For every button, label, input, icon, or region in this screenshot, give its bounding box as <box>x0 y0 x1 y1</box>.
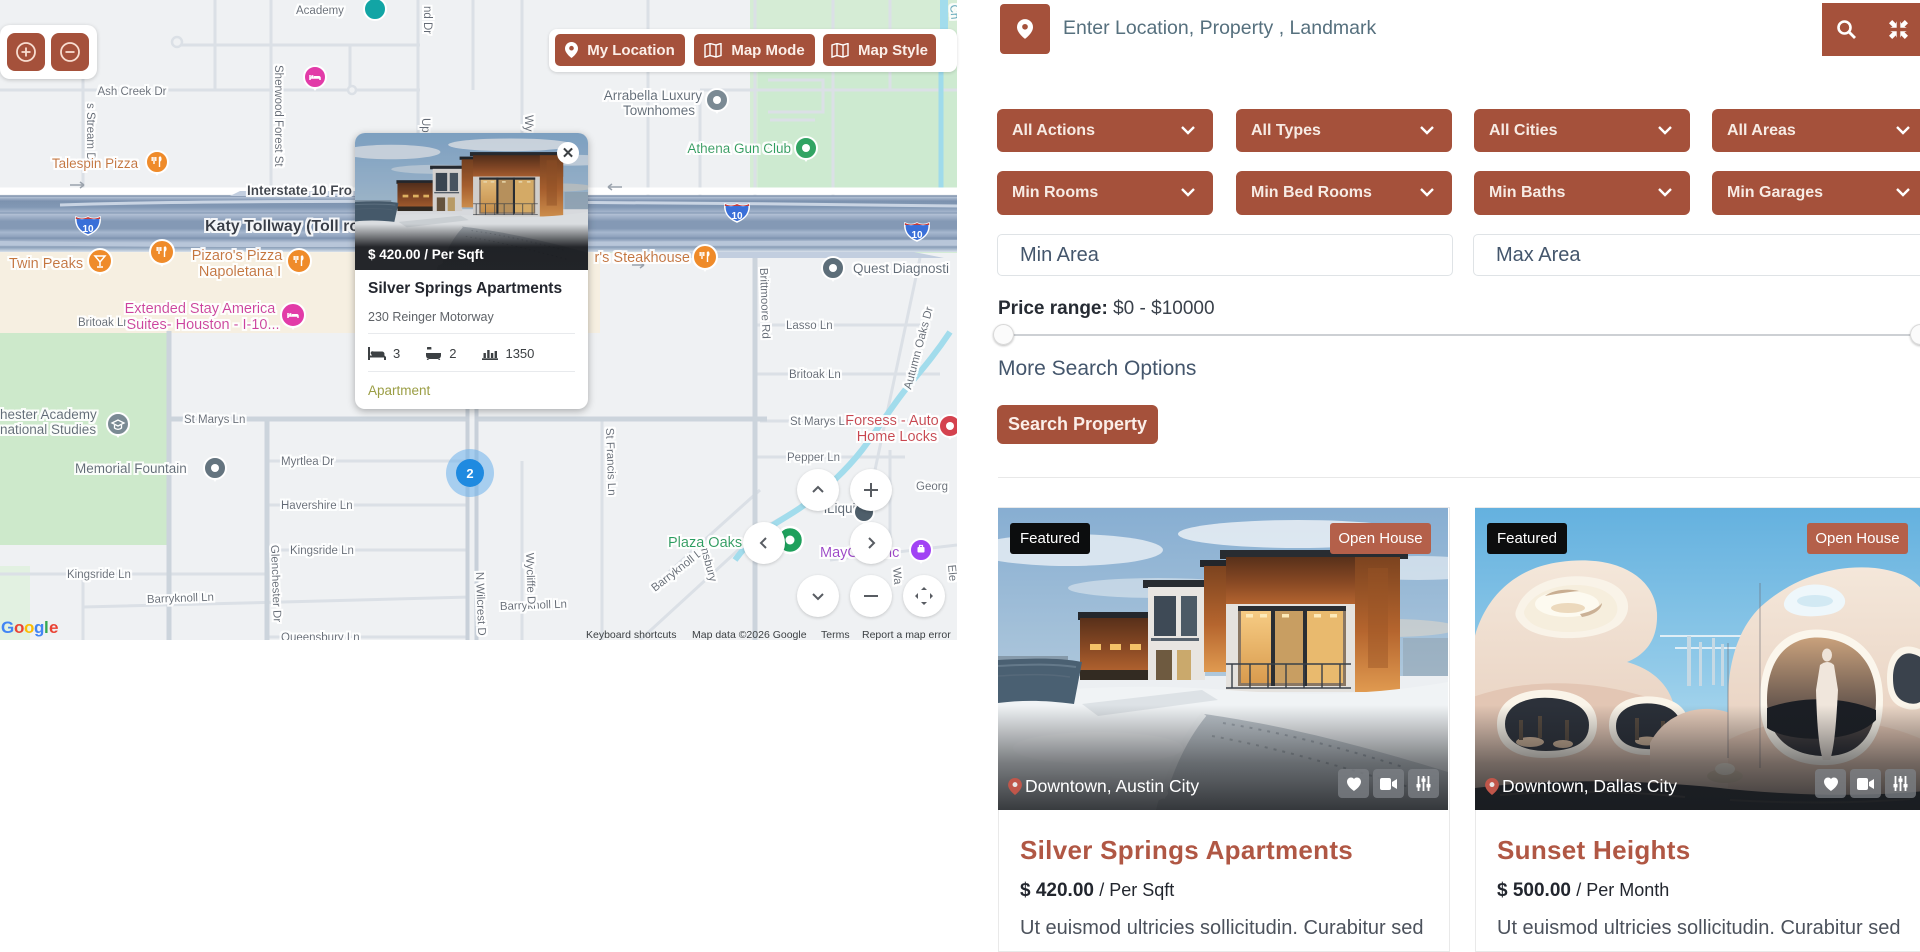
svg-text:Katy Tollway (Toll roa: Katy Tollway (Toll roa <box>205 218 368 235</box>
svg-text:10: 10 <box>731 211 743 222</box>
svg-text:St Marys Ln: St Marys Ln <box>790 416 851 428</box>
svg-text:Athena Gun Club: Athena Gun Club <box>687 141 791 156</box>
svg-text:Keyboard shortcuts: Keyboard shortcuts <box>586 629 676 640</box>
svg-text:Terms: Terms <box>821 629 850 640</box>
svg-text:national Studies: national Studies <box>0 422 96 437</box>
svg-text:N Wilcrest D: N Wilcrest D <box>473 572 487 636</box>
svg-text:Extended Stay America: Extended Stay America <box>125 301 277 317</box>
svg-text:Academy: Academy <box>296 5 344 17</box>
svg-text:Glenchester Dr: Glenchester Dr <box>268 545 283 623</box>
svg-text:Georg: Georg <box>916 481 948 493</box>
svg-text:Home Locks: Home Locks <box>857 429 938 445</box>
svg-text:Plaza Oaks: Plaza Oaks <box>668 535 742 551</box>
svg-text:Britoak Ln: Britoak Ln <box>789 369 841 381</box>
svg-text:nsbury: nsbury <box>698 547 719 584</box>
svg-text:Map data ©2026 Google: Map data ©2026 Google <box>692 629 807 640</box>
svg-text:Sherwood Forest St: Sherwood Forest St <box>272 65 284 167</box>
svg-text:Suites- Houston - I-10...: Suites- Houston - I-10... <box>126 317 279 333</box>
svg-text:nd Dr: nd Dr <box>421 6 433 34</box>
svg-text:Napoletana I: Napoletana I <box>199 264 281 280</box>
svg-text:Up: Up <box>419 118 431 133</box>
svg-text:r's Steakhouse: r's Steakhouse <box>595 250 690 266</box>
svg-text:e: e <box>49 618 58 637</box>
svg-text:Ch: Ch <box>947 4 957 20</box>
svg-text:Quest Diagnosti: Quest Diagnosti <box>853 261 949 276</box>
svg-text:Townhomes: Townhomes <box>623 103 695 118</box>
svg-text:Lasso Ln: Lasso Ln <box>786 320 833 332</box>
svg-text:Ele: Ele <box>945 564 957 582</box>
svg-text:Brittmoore Rd: Brittmoore Rd <box>757 268 771 339</box>
svg-text:Queensbury Ln: Queensbury Ln <box>281 632 360 640</box>
svg-text:o: o <box>24 618 34 637</box>
svg-text:Twin Peaks: Twin Peaks <box>9 256 83 272</box>
svg-text:o: o <box>14 618 24 637</box>
svg-text:Havershire Ln: Havershire Ln <box>281 500 353 512</box>
svg-text:Wa: Wa <box>890 567 903 585</box>
svg-text:Wy: Wy <box>522 115 534 132</box>
svg-text:Report a map error: Report a map error <box>862 629 951 640</box>
svg-text:Kingsride Ln: Kingsride Ln <box>67 569 131 581</box>
svg-text:10: 10 <box>911 230 923 241</box>
svg-text:Arrabella Luxury: Arrabella Luxury <box>604 88 703 103</box>
svg-text:Wycliffe D: Wycliffe D <box>523 553 537 605</box>
svg-text:Pepper Ln: Pepper Ln <box>787 452 840 464</box>
svg-text:Pizaro's Pizza: Pizaro's Pizza <box>192 248 284 264</box>
svg-text:Barryknoll Ln: Barryknoll Ln <box>147 592 215 606</box>
svg-text:Talespin Pizza: Talespin Pizza <box>52 156 139 171</box>
svg-text:Autumn Oaks Dr: Autumn Oaks Dr <box>902 305 936 390</box>
svg-text:Ash Creek Dr: Ash Creek Dr <box>97 86 166 98</box>
svg-text:Memorial Fountain: Memorial Fountain <box>75 461 187 476</box>
svg-text:Forsess - Auto: Forsess - Auto <box>845 413 938 429</box>
svg-text:Interstate 10 Fro: Interstate 10 Fro <box>247 183 352 198</box>
svg-text:Britoak Ln: Britoak Ln <box>78 317 130 329</box>
svg-text:St Marys Ln: St Marys Ln <box>184 414 245 426</box>
svg-text:hester Academy: hester Academy <box>0 407 97 422</box>
svg-text:g: g <box>34 618 44 637</box>
svg-text:Myrtlea Dr: Myrtlea Dr <box>281 456 334 468</box>
svg-text:Kingsride Ln: Kingsride Ln <box>290 545 354 557</box>
svg-text:G: G <box>1 618 14 637</box>
svg-text:St Francis Ln: St Francis Ln <box>603 428 617 496</box>
svg-text:10: 10 <box>82 224 94 235</box>
